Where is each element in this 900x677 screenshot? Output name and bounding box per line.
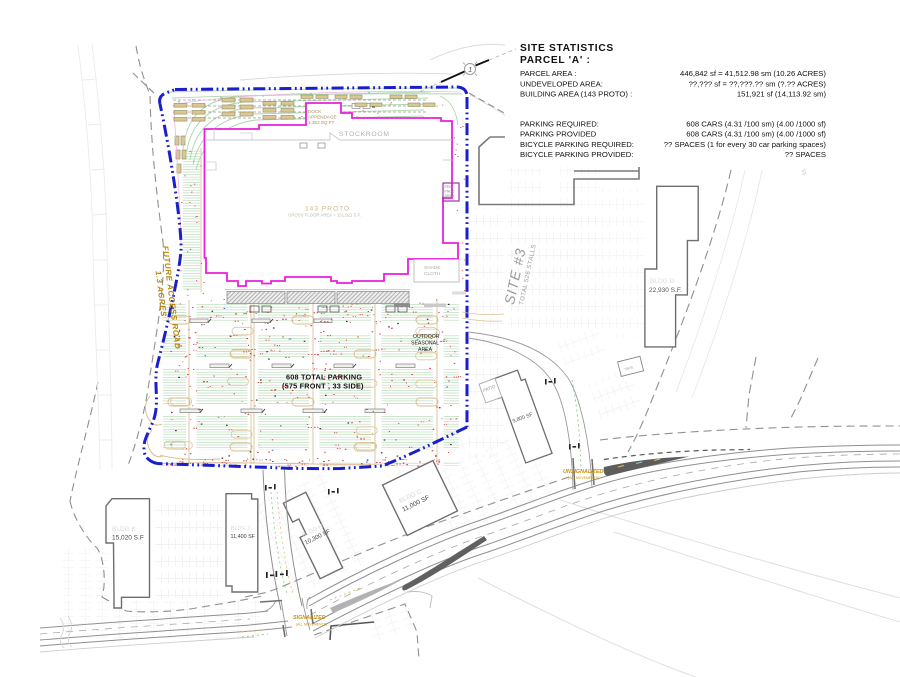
svg-text:11,400 SF: 11,400 SF [231,534,256,540]
svg-text:BUILDING AREA (143 PROTO) :: BUILDING AREA (143 PROTO) : [520,90,632,99]
svg-text:?? SPACES (1 for every 30 car: ?? SPACES (1 for every 30 car parking sp… [664,140,827,149]
svg-text:DOCK: DOCK [308,109,322,114]
svg-text:PARCEL 'A' :: PARCEL 'A' : [520,55,591,66]
svg-text:BLDG K: BLDG K [112,526,137,533]
svg-text:SEASONAL: SEASONAL [411,341,439,347]
svg-text:PARCEL AREA :: PARCEL AREA : [520,69,576,78]
svg-text:143 PROTO: 143 PROTO [305,206,350,213]
svg-text:(ALL MOVEMENTS): (ALL MOVEMENTS) [296,623,327,627]
svg-text:3,353 SQ FT: 3,353 SQ FT [308,120,334,125]
svg-text:GROSS FLOOR AREA = 151,921 S.F: GROSS FLOOR AREA = 151,921 S.F. [288,213,361,218]
svg-text:?? SPACES: ?? SPACES [785,150,826,159]
svg-text:SITE STATISTICS: SITE STATISTICS [520,43,614,54]
svg-text:OUTDOOR: OUTDOOR [413,334,440,340]
svg-text:BLDG J: BLDG J [231,526,250,532]
svg-text:UNSIGNALIZED: UNSIGNALIZED [563,469,604,475]
svg-text:PARKING PROVIDED: PARKING PROVIDED [520,130,597,139]
svg-text:(575 FRONT , 33 SIDE): (575 FRONT , 33 SIDE) [282,382,364,391]
svg-text:(ALL MOVEMENTS): (ALL MOVEMENTS) [568,476,599,480]
svg-text:FNCD: FNCD [445,190,455,194]
svg-text:608 CARS (4.31 /100 sm) (4.00: 608 CARS (4.31 /100 sm) (4.00 /1000 sf) [686,119,826,128]
svg-text:SIGNALIZED: SIGNALIZED [293,615,326,621]
svg-text:BICYCLE PARKING PROVIDED:: BICYCLE PARKING PROVIDED: [520,150,634,159]
svg-text:608 TOTAL PARKING: 608 TOTAL PARKING [286,373,362,382]
svg-text:22,930 S.F.: 22,930 S.F. [649,287,682,294]
svg-text:608 CARS (4.31 /100 sm) (4.00: 608 CARS (4.31 /100 sm) (4.00 /1000 sf) [686,130,826,139]
svg-text:15,020 S.F: 15,020 S.F [112,535,144,542]
svg-text:STOCKROOM: STOCKROOM [339,131,390,138]
svg-text:AREA: AREA [418,347,433,353]
svg-text:CLOTH: CLOTH [424,271,441,277]
svg-text:UNDEVELOPED AREA:: UNDEVELOPED AREA: [520,79,603,88]
svg-text:SHADE: SHADE [424,265,441,271]
svg-text:BLDG D: BLDG D [650,278,675,285]
svg-text:APPENDAGE: APPENDAGE [308,115,337,120]
svg-text:AREA: AREA [445,194,455,198]
svg-text:PARKING REQUIRED:: PARKING REQUIRED: [520,119,599,128]
svg-text:1: 1 [468,67,472,74]
svg-text:446,842 sf = 41,512.98 sm (10: 446,842 sf = 41,512.98 sm (10.26 ACRES) [680,69,826,78]
svg-text:??,??? sf = ??,???.?? sm (?.??: ??,??? sf = ??,???.?? sm (?.?? ACRES) [689,79,827,88]
svg-text:151,921 sf (14,113.92 sm): 151,921 sf (14,113.92 sm) [737,90,827,99]
svg-text:PEN: PEN [445,185,453,189]
svg-text:BICYCLE PARKING REQUIRED:: BICYCLE PARKING REQUIRED: [520,140,634,149]
